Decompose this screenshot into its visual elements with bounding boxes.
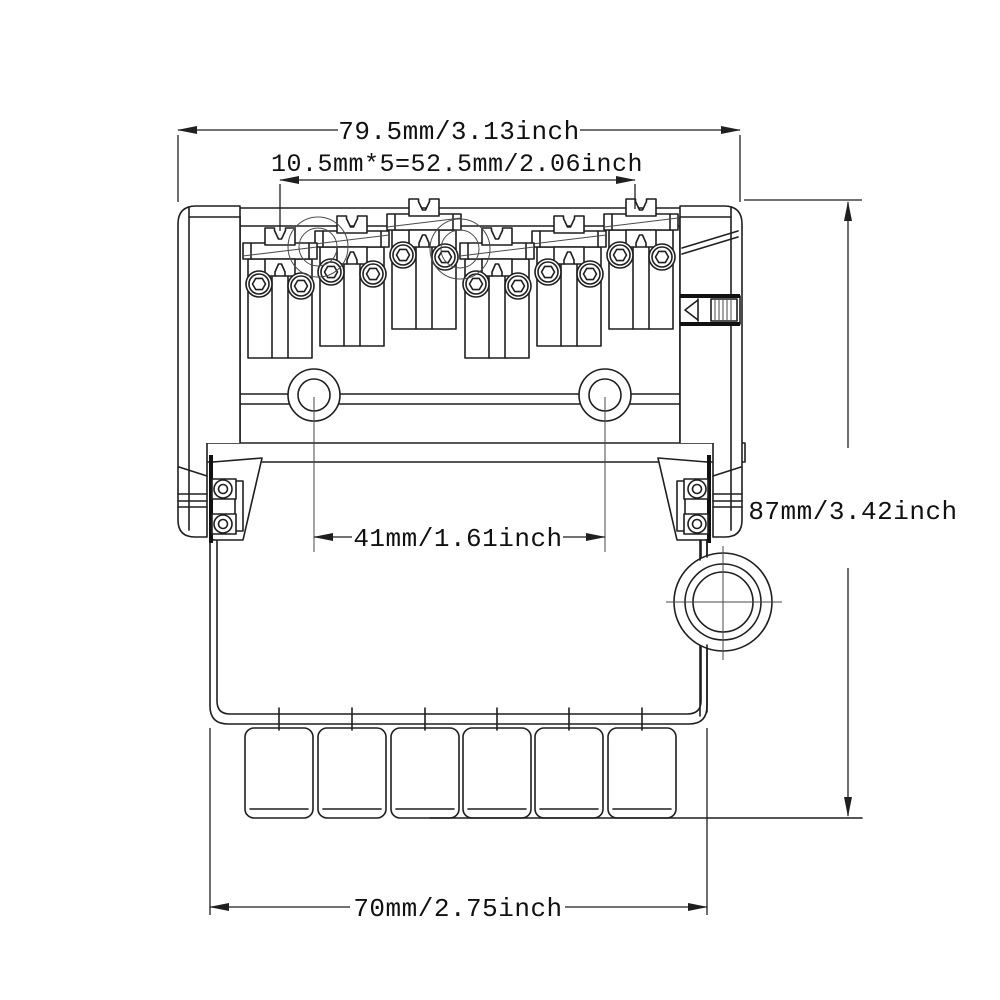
ferrule-5 [535, 728, 603, 818]
hole-spacing-dimension: 41mm/1.61inch [314, 524, 605, 554]
ferrule-1 [245, 728, 313, 818]
saddle-3 [387, 199, 461, 329]
top-width-label: 79.5mm/3.13inch [338, 117, 580, 147]
bottom-width-label: 70mm/2.75inch [353, 894, 562, 924]
ferrule-4 [463, 728, 531, 818]
lower-body [210, 462, 707, 724]
string-spacing-label: 10.5mm*5=52.5mm/2.06inch [271, 150, 643, 179]
height-label: 87mm/3.42inch [748, 497, 957, 527]
hole-spacing-label: 41mm/1.61inch [353, 524, 562, 554]
technical-drawing: 79.5mm/3.13inch 10.5mm*5=52.5mm/2.06inch… [0, 0, 1000, 1000]
saddle-1 [243, 228, 317, 358]
saddle-5 [532, 216, 606, 346]
saddle-4 [460, 228, 534, 358]
ferrule-6 [608, 728, 676, 818]
saddle-6 [604, 199, 678, 329]
saddle-2 [315, 216, 389, 346]
ferrule-2 [318, 728, 386, 818]
ferrule-3 [391, 728, 459, 818]
height-dimension: 87mm/3.42inch [744, 200, 958, 816]
